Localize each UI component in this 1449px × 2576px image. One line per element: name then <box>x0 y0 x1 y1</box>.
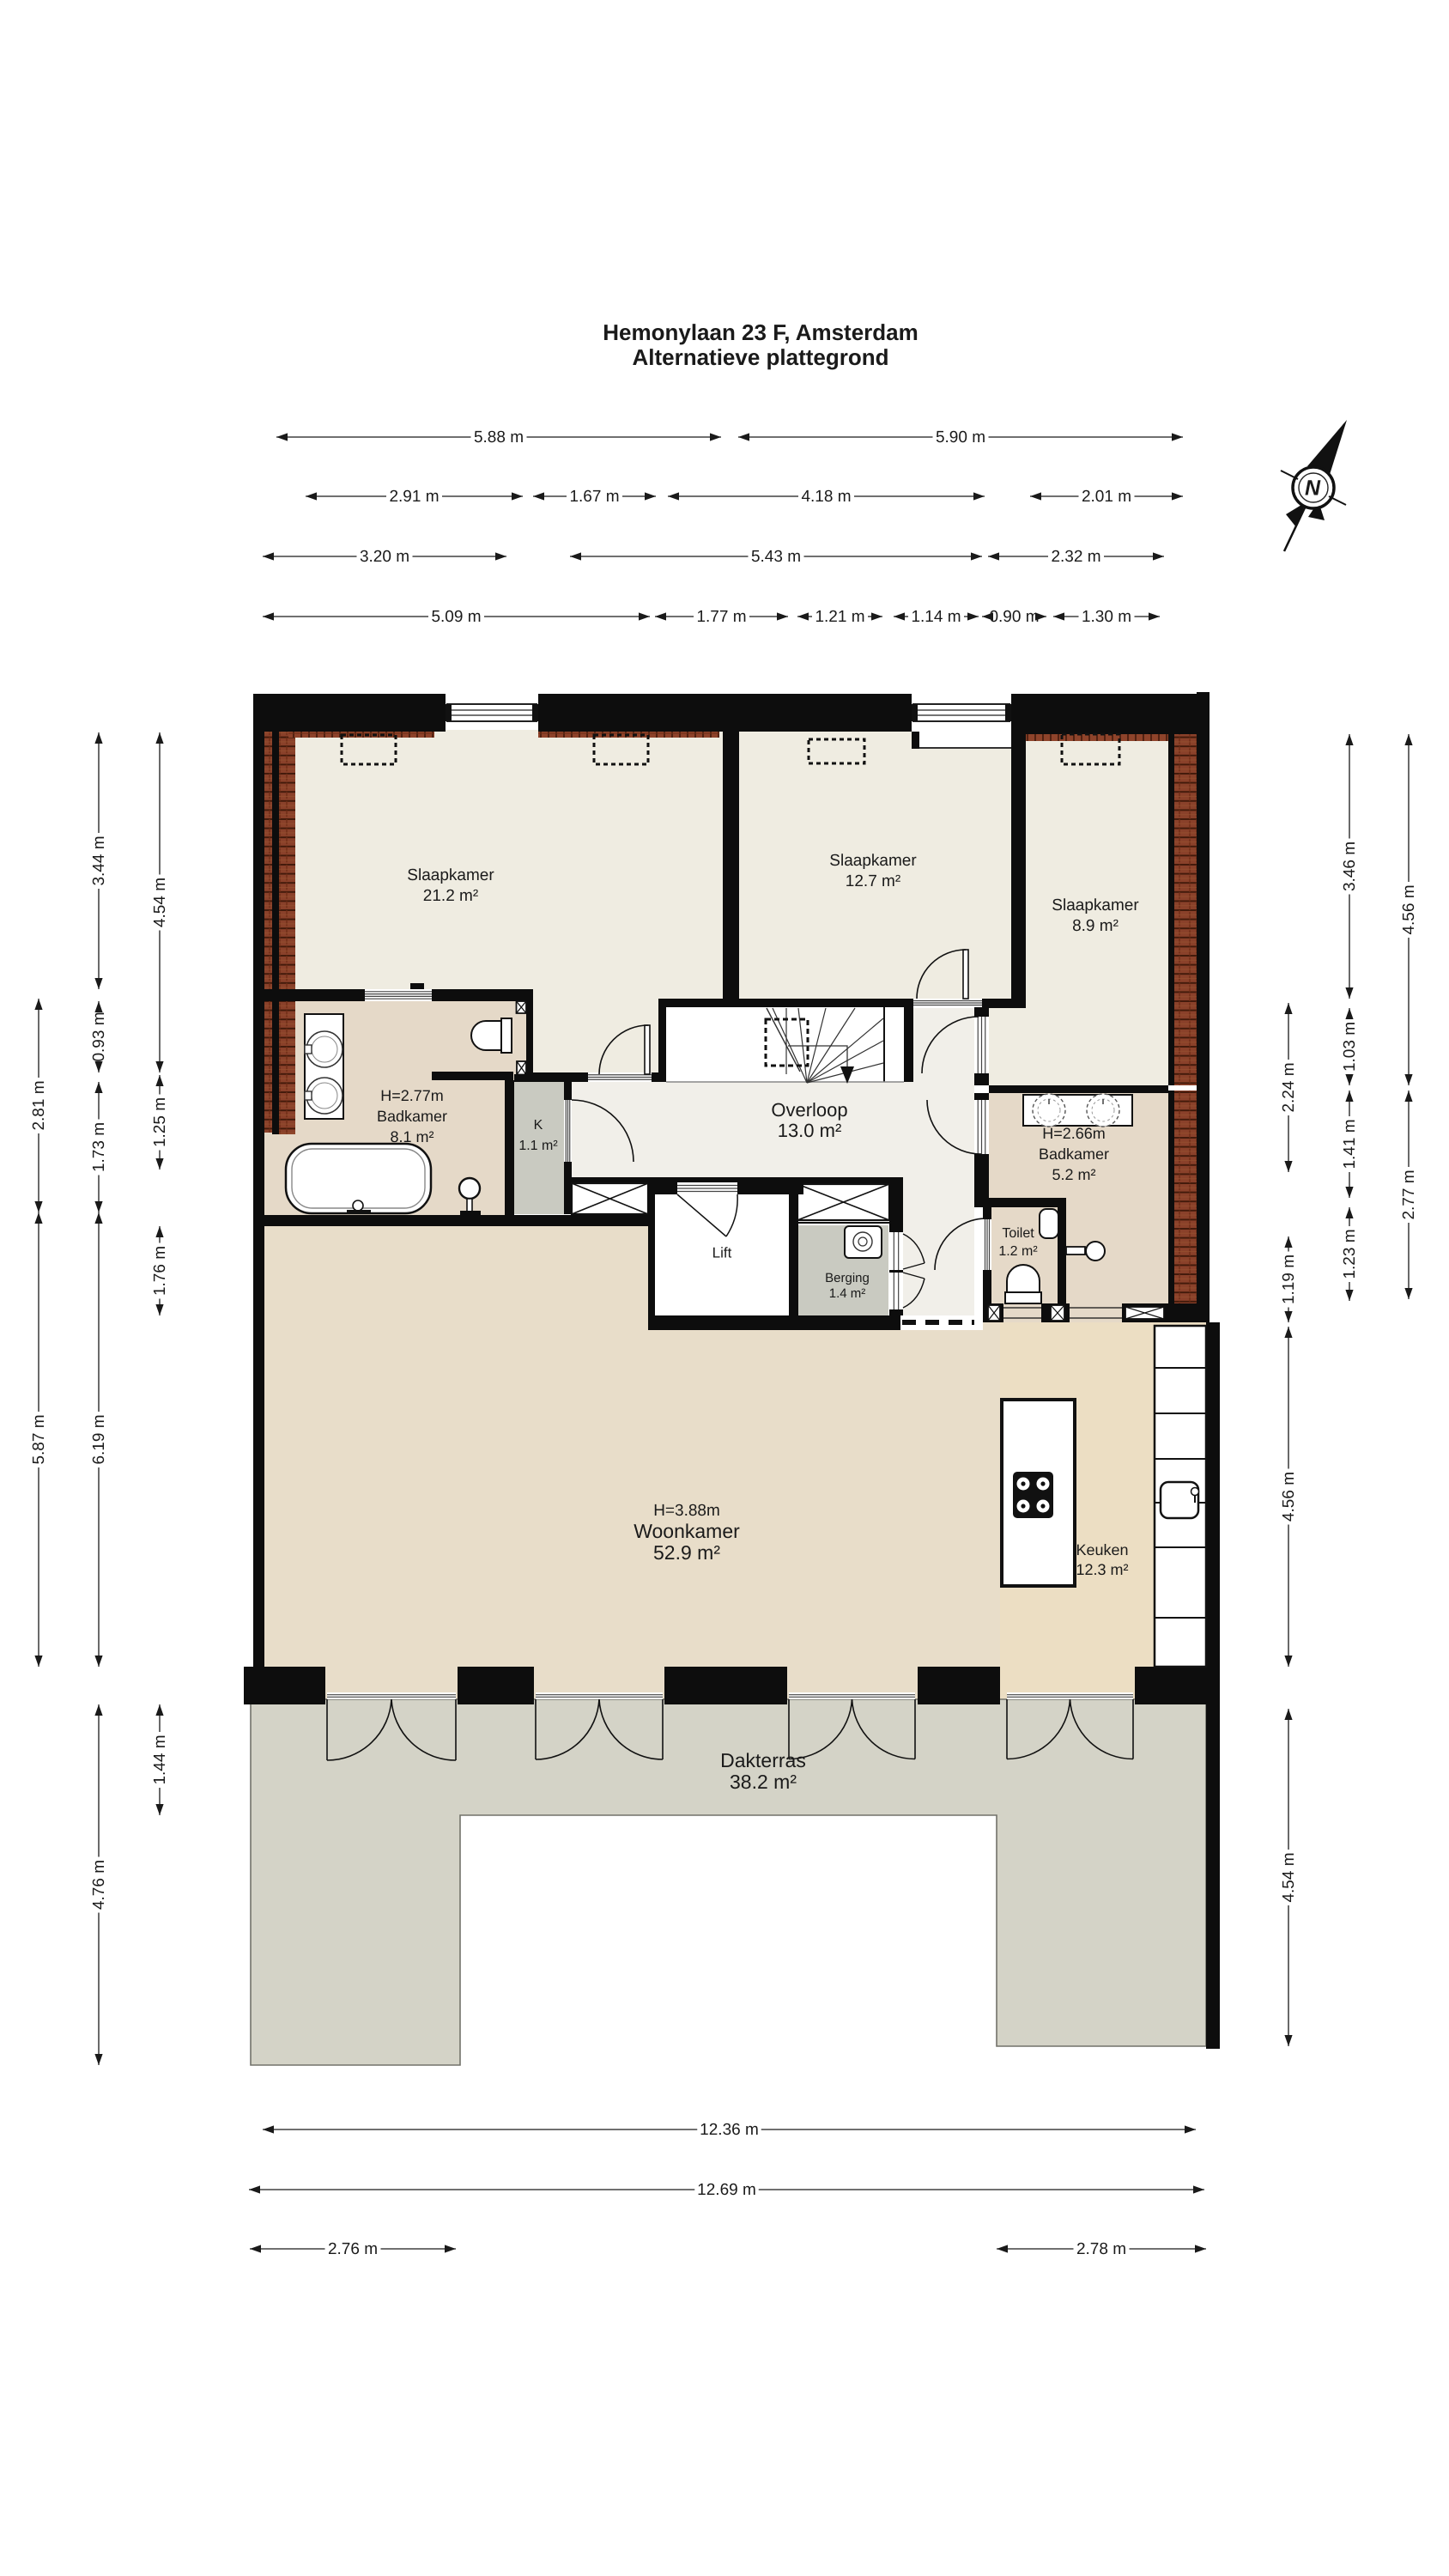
svg-text:5.88 m: 5.88 m <box>474 428 524 447</box>
svg-text:1.14 m: 1.14 m <box>911 608 961 626</box>
svg-text:4.54 m: 4.54 m <box>151 878 169 927</box>
svg-text:N: N <box>1305 477 1321 501</box>
svg-text:8.1 m²: 8.1 m² <box>390 1128 433 1145</box>
svg-text:2.76 m: 2.76 m <box>328 2240 378 2258</box>
svg-text:12.36 m: 12.36 m <box>700 2121 759 2139</box>
svg-text:2.78 m: 2.78 m <box>1076 2240 1126 2258</box>
svg-text:1.2 m²: 1.2 m² <box>998 1244 1038 1259</box>
svg-text:1.30 m: 1.30 m <box>1082 608 1131 626</box>
svg-text:0.93 m: 0.93 m <box>90 1012 108 1061</box>
svg-text:4.56 m: 4.56 m <box>1280 1472 1298 1522</box>
svg-text:2.77 m: 2.77 m <box>1400 1170 1418 1219</box>
svg-text:2.81 m: 2.81 m <box>30 1080 48 1130</box>
svg-text:5.90 m: 5.90 m <box>936 428 985 447</box>
svg-text:Dakterras: Dakterras <box>720 1749 806 1771</box>
svg-text:1.25 m: 1.25 m <box>151 1097 169 1147</box>
svg-text:5.2 m²: 5.2 m² <box>1052 1166 1095 1183</box>
svg-text:1.1 m²: 1.1 m² <box>518 1139 558 1153</box>
svg-text:6.19 m: 6.19 m <box>90 1414 108 1464</box>
svg-text:12.3 m²: 12.3 m² <box>1076 1561 1128 1578</box>
svg-text:5.87 m: 5.87 m <box>30 1414 48 1464</box>
svg-text:3.46 m: 3.46 m <box>1341 841 1359 891</box>
svg-text:2.32 m: 2.32 m <box>1051 548 1100 566</box>
svg-text:1.76 m: 1.76 m <box>151 1246 169 1296</box>
svg-text:8.9 m²: 8.9 m² <box>1072 917 1119 935</box>
svg-text:Woonkamer: Woonkamer <box>634 1520 740 1542</box>
svg-text:13.0 m²: 13.0 m² <box>778 1120 842 1141</box>
svg-text:4.18 m: 4.18 m <box>801 488 851 506</box>
svg-text:H=2.77m: H=2.77m <box>380 1087 444 1104</box>
svg-text:H=2.66m: H=2.66m <box>1042 1125 1106 1142</box>
svg-text:2.91 m: 2.91 m <box>389 488 439 506</box>
svg-text:4.54 m: 4.54 m <box>1280 1852 1298 1902</box>
svg-text:1.19 m: 1.19 m <box>1280 1255 1298 1304</box>
svg-text:1.4 m²: 1.4 m² <box>829 1286 866 1301</box>
svg-text:0.90 m: 0.90 m <box>989 608 1039 626</box>
svg-text:1.23 m: 1.23 m <box>1341 1229 1359 1279</box>
svg-text:2.01 m: 2.01 m <box>1082 488 1131 506</box>
svg-text:Hemonylaan 23 F, Amsterdam: Hemonylaan 23 F, Amsterdam <box>603 319 919 345</box>
svg-text:21.2 m²: 21.2 m² <box>423 887 478 905</box>
svg-text:Slaapkamer: Slaapkamer <box>407 866 494 884</box>
svg-text:Lift: Lift <box>712 1244 732 1261</box>
svg-text:Toilet: Toilet <box>1002 1226 1034 1241</box>
svg-text:1.67 m: 1.67 m <box>569 488 619 506</box>
svg-text:Slaapkamer: Slaapkamer <box>1052 896 1139 914</box>
svg-text:1.44 m: 1.44 m <box>151 1735 169 1784</box>
svg-text:Keuken: Keuken <box>1076 1541 1128 1558</box>
svg-text:1.03 m: 1.03 m <box>1341 1022 1359 1072</box>
svg-text:1.77 m: 1.77 m <box>696 608 746 626</box>
svg-text:Berging: Berging <box>825 1271 870 1285</box>
svg-text:Slaapkamer: Slaapkamer <box>829 852 917 870</box>
svg-text:1.41 m: 1.41 m <box>1341 1119 1359 1169</box>
svg-text:H=3.88m: H=3.88m <box>653 1502 720 1520</box>
svg-text:Badkamer: Badkamer <box>1039 1145 1109 1163</box>
svg-text:Overloop: Overloop <box>771 1099 847 1121</box>
svg-text:4.56 m: 4.56 m <box>1400 884 1418 934</box>
svg-text:5.09 m: 5.09 m <box>431 608 481 626</box>
svg-text:4.76 m: 4.76 m <box>90 1860 108 1910</box>
svg-text:52.9 m²: 52.9 m² <box>653 1541 720 1564</box>
svg-text:1.21 m: 1.21 m <box>815 608 864 626</box>
svg-text:3.20 m: 3.20 m <box>360 548 409 566</box>
svg-text:12.69 m: 12.69 m <box>697 2181 756 2199</box>
svg-text:12.7 m²: 12.7 m² <box>846 872 900 890</box>
svg-text:Alternatieve plattegrond: Alternatieve plattegrond <box>632 344 888 370</box>
svg-text:3.44 m: 3.44 m <box>90 835 108 885</box>
svg-text:Badkamer: Badkamer <box>377 1108 447 1125</box>
svg-text:5.43 m: 5.43 m <box>751 548 801 566</box>
svg-text:K: K <box>534 1118 543 1133</box>
svg-text:2.24 m: 2.24 m <box>1280 1062 1298 1112</box>
svg-text:38.2 m²: 38.2 m² <box>730 1771 797 1793</box>
svg-text:1.73 m: 1.73 m <box>90 1122 108 1172</box>
